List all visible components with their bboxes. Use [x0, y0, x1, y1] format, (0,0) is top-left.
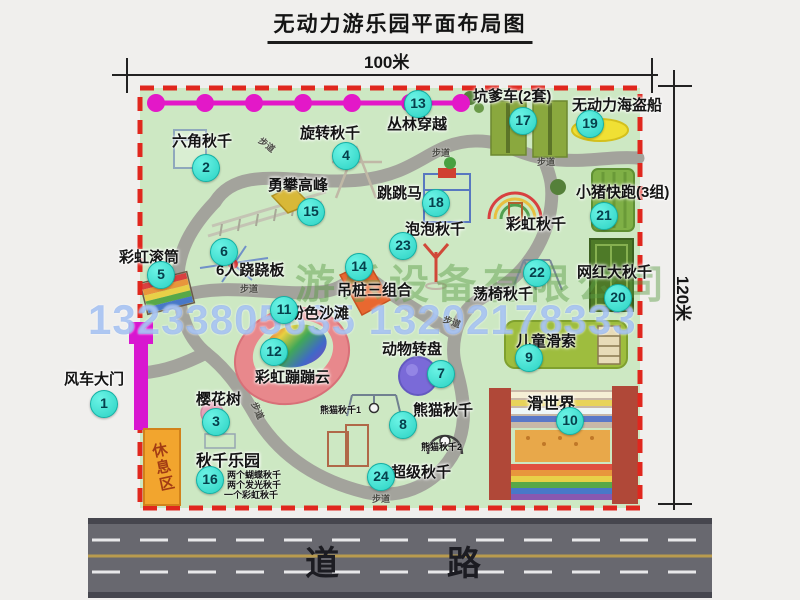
trail-label: 步道	[432, 146, 450, 159]
badge-18: 18	[422, 189, 450, 217]
badge-22: 22	[523, 259, 551, 287]
badge-1: 1	[90, 390, 118, 418]
attraction-label-20: 网红大秋千	[577, 261, 652, 282]
attraction-label-15: 勇攀高峰	[268, 174, 328, 195]
trail-label: 步道	[537, 155, 555, 168]
attraction-label-8: 熊猫秋千	[413, 399, 473, 420]
attraction-label-7: 动物转盘	[382, 338, 442, 359]
attraction-label-14: 吊桩三组合	[337, 279, 412, 300]
badge-12: 12	[260, 338, 288, 366]
page-title: 无动力游乐园平面布局图	[268, 8, 533, 44]
attraction-label-11: 粉色沙滩	[289, 302, 349, 323]
width-dimension-label: 100米	[364, 48, 409, 73]
badge-6: 6	[210, 238, 238, 266]
panda-swing-1-label: 熊猫秋千1	[320, 403, 361, 416]
attraction-label-17: 坑爹车(2套)	[473, 85, 551, 106]
badge-24: 24	[367, 463, 395, 491]
badge-20: 20	[604, 284, 632, 312]
attraction-label-12: 彩虹蹦蹦云	[255, 366, 330, 387]
badge-7: 7	[427, 360, 455, 388]
badge-5: 5	[147, 261, 175, 289]
trail-label: 步道	[372, 492, 390, 505]
attraction-label-2: 六角秋千	[172, 130, 232, 151]
park-layout-screenshot: 无动力游乐园平面布局图	[0, 0, 800, 600]
badge-23: 23	[389, 232, 417, 260]
badge-16: 16	[196, 466, 224, 494]
badge-4: 4	[332, 142, 360, 170]
badge-17: 17	[509, 107, 537, 135]
badge-11: 11	[270, 296, 298, 324]
rest-area-label: 休息区	[146, 440, 177, 494]
badge-9: 9	[515, 344, 543, 372]
attraction-label-18: 跳跳马	[377, 182, 422, 203]
badge-19: 19	[576, 110, 604, 138]
attraction-label-1: 风车大门	[64, 368, 124, 389]
badge-15: 15	[297, 198, 325, 226]
height-dimension-label: 120米	[672, 276, 697, 321]
rest-area: 休息区	[143, 428, 181, 506]
badge-14: 14	[345, 253, 373, 281]
panda-swing-2-label: 熊猫秋千2	[421, 440, 462, 453]
rainbow-swing-label: 彩虹秋千	[506, 213, 566, 234]
attraction-label-22: 荡椅秋千	[473, 283, 533, 304]
attraction-label-4: 旋转秋千	[300, 122, 360, 143]
badge-3: 3	[202, 408, 230, 436]
badge-2: 2	[192, 154, 220, 182]
attraction-label-23: 泡泡秋千	[405, 218, 465, 239]
attraction-label-3: 樱花树	[196, 388, 241, 409]
badge-10: 10	[556, 407, 584, 435]
badge-8: 8	[389, 411, 417, 439]
attraction-label-21: 小猪快跑(3组)	[576, 181, 669, 202]
badge-13: 13	[404, 90, 432, 118]
trail-label: 步道	[240, 282, 258, 295]
badge-21: 21	[590, 202, 618, 230]
road-label: 道 路	[0, 536, 800, 585]
attraction-label-24: 超级秋千	[391, 461, 451, 482]
swing-paradise-note-3: 一个彩虹秋千	[224, 488, 278, 501]
